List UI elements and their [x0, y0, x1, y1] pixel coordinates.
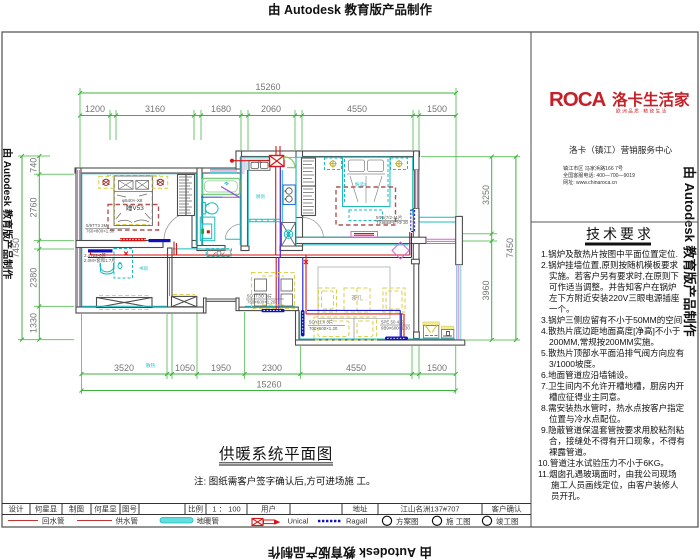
svg-text:合，接缝处不得有开口现象，不得有: 合，接缝处不得有开口现象，不得有 — [549, 436, 685, 446]
svg-text:1330: 1330 — [29, 313, 39, 333]
svg-text:3250: 3250 — [481, 185, 491, 205]
svg-text:3520: 3520 — [114, 363, 134, 373]
svg-text:5.散热片顶部水平面沿排气阀方向应有: 5.散热片顶部水平面沿排气阀方向应有 — [541, 348, 684, 358]
svg-text:3.锅炉三侧应留有不小于50MM的空间: 3.锅炉三侧应留有不小于50MM的空间 — [541, 315, 682, 325]
svg-text:散热: 散热 — [146, 362, 156, 369]
svg-text:5/9TT3 3M: 5/9TT3 3M — [86, 223, 108, 228]
svg-text:网址: www.chinaroca.cn: 网址: www.chinaroca.cn — [563, 179, 617, 186]
svg-text:洛卡生活家: 洛卡生活家 — [612, 90, 690, 109]
svg-text:何星显: 何星显 — [94, 504, 117, 514]
svg-text:睡V53: 睡V53 — [126, 204, 144, 212]
svg-text:3160: 3160 — [145, 104, 165, 114]
svg-text:15260: 15260 — [256, 380, 281, 390]
svg-text:地暖管: 地暖管 — [197, 516, 220, 526]
svg-text:一个。: 一个。 — [549, 304, 575, 314]
svg-text:方案图: 方案图 — [396, 516, 419, 526]
svg-text:1200: 1200 — [85, 104, 105, 114]
svg-text:2060: 2060 — [261, 104, 281, 114]
svg-text:用户: 用户 — [261, 504, 276, 514]
svg-text:由 Autodesk 教育版产品制作: 由 Autodesk 教育版产品制作 — [268, 2, 432, 17]
svg-text:Ragall: Ragall — [346, 517, 368, 526]
svg-text:7450: 7450 — [11, 238, 21, 258]
svg-text:4550: 4550 — [346, 363, 366, 373]
svg-text:15260: 15260 — [255, 82, 280, 92]
svg-text:可作适当调整。并告知客户在锅炉: 可作适当调整。并告知客户在锅炉 — [549, 282, 677, 292]
svg-text:2760: 2760 — [29, 197, 39, 217]
svg-text:由 Autodesk 教育版产品制作: 由 Autodesk 教育版产品制作 — [1, 148, 14, 279]
svg-text:1680: 1680 — [211, 104, 231, 114]
svg-text:9.隐蔽管道保温套管按要求用胶粘剂粘: 9.隐蔽管道保温套管按要求用胶粘剂粘 — [541, 425, 685, 435]
svg-text:5ΟΤΤ3Ο 3片: 5ΟΤΤ3Ο 3片 — [247, 293, 272, 300]
svg-text:镇江市区 冯家浜路166 7号: 镇江市区 冯家浜路166 7号 — [563, 165, 623, 172]
svg-text:员开孔。: 员开孔。 — [551, 491, 585, 501]
svg-text:8.需安装热水管时，热水点按客户指定: 8.需安装热水管时，热水点按客户指定 — [541, 403, 685, 413]
svg-text:2300: 2300 — [262, 363, 282, 373]
svg-text:4.散热片底边距地面高度[净高]不小于: 4.散热片底边距地面高度[净高]不小于 — [541, 326, 681, 336]
svg-text:左下方附近安装220V三眼电源插座: 左下方附近安装220V三眼电源插座 — [549, 293, 680, 303]
svg-text:全国客服电话: 400—700—9019: 全国客服电话: 400—700—9019 — [563, 172, 635, 179]
svg-text:厨房: 厨房 — [256, 193, 266, 200]
svg-text:供暖系统平面图: 供暖系统平面图 — [219, 445, 333, 463]
svg-text:注: 图纸需客户签字确认后,方可进场施 工。: 注: 图纸需客户签字确认后,方可进场施 工。 — [194, 476, 376, 488]
svg-text:供水管: 供水管 — [116, 516, 139, 526]
svg-text:江山名洲137#707: 江山名洲137#707 — [400, 504, 459, 514]
svg-text:5ΡΕ 50 4片: 5ΡΕ 50 4片 — [381, 319, 403, 326]
svg-text:比例: 比例 — [188, 504, 203, 514]
svg-text:760×600×1.20: 760×600×1.20 — [247, 300, 276, 305]
svg-text:Unical: Unical — [288, 517, 309, 526]
svg-text:裸露管道。: 裸露管道。 — [549, 447, 592, 457]
svg-text:客户确认: 客户确认 — [492, 504, 522, 514]
svg-text:欧洲品质·精致生活: 欧洲品质·精致生活 — [616, 108, 668, 115]
svg-text:书房: 书房 — [139, 265, 149, 272]
svg-text:5ΟΥ(1.0 3片: 5ΟΥ(1.0 3片 — [309, 319, 333, 326]
svg-text:3/1000坡度。: 3/1000坡度。 — [549, 359, 601, 369]
svg-text:1 ： 100: 1 ： 100 — [212, 505, 240, 514]
svg-text:技术要求: 技术要求 — [586, 226, 654, 242]
svg-text:由 Autodesk 教育版产品制作: 由 Autodesk 教育版产品制作 — [682, 166, 697, 336]
svg-text:位置与冷水点配位。: 位置与冷水点配位。 — [549, 414, 626, 424]
svg-text:回水管: 回水管 — [42, 516, 65, 526]
svg-text:760×800×1.50: 760×800×1.50 — [86, 229, 115, 234]
svg-text:1050: 1050 — [175, 363, 195, 373]
svg-text:何星显: 何星显 — [35, 504, 58, 514]
svg-text:7450: 7450 — [505, 238, 515, 258]
svg-text:1950: 1950 — [211, 363, 231, 373]
svg-text:地址: 地址 — [353, 504, 368, 514]
svg-text:实施。若客户另有要求时,在原则下: 实施。若客户另有要求时,在原则下 — [549, 271, 679, 281]
svg-text:制图: 制图 — [69, 504, 84, 514]
svg-text:图号: 图号 — [122, 505, 137, 514]
svg-text:2380: 2380 — [29, 268, 39, 288]
svg-text:6.地面管道应沿墙铺设。: 6.地面管道应沿墙铺设。 — [541, 370, 633, 380]
svg-text:施 工图: 施 工图 — [446, 516, 471, 526]
svg-text:1500: 1500 — [427, 104, 447, 114]
svg-text:φ540×-Χ8: φ540×-Χ8 — [122, 198, 143, 203]
svg-text:7.卫生间内不允许开槽地槽，厨房内开: 7.卫生间内不允许开槽地槽，厨房内开 — [541, 381, 685, 391]
svg-text:ROCA: ROCA — [549, 88, 607, 111]
svg-text:施工人员画线定位，由客户装修人: 施工人员画线定位，由客户装修人 — [551, 480, 679, 490]
svg-text:9Β9×600×1.30: 9Β9×600×1.30 — [381, 326, 410, 331]
svg-text:4550: 4550 — [347, 104, 367, 114]
svg-text:10.管道注水试验压力不小于6KG。: 10.管道注水试验压力不小于6KG。 — [538, 458, 669, 468]
svg-text:200MM,常规按200MM实施。: 200MM,常规按200MM实施。 — [549, 337, 659, 347]
svg-text:3960: 3960 — [481, 280, 491, 300]
svg-text:粉蓝5: 粉蓝5 — [355, 181, 367, 188]
svg-text:1500: 1500 — [427, 363, 447, 373]
svg-text:槽应征得业主同意。: 槽应征得业主同意。 — [549, 392, 626, 402]
svg-text:洛卡（镇江）营销服务中心: 洛卡（镇江）营销服务中心 — [569, 144, 673, 155]
svg-text:由 Autodesk 教育版产品制作: 由 Autodesk 教育版产品制作 — [268, 545, 432, 560]
svg-text:1.锅炉及散热片按图中平面位置定位.: 1.锅炉及散热片按图中平面位置定位. — [541, 249, 678, 259]
svg-text:11.烟囱孔遇玻璃面时，由我公司现场: 11.烟囱孔遇玻璃面时，由我公司现场 — [538, 469, 677, 479]
svg-text:700×600×1.20: 700×600×1.20 — [309, 326, 338, 331]
svg-text:740: 740 — [29, 158, 39, 173]
svg-text:2.锅炉挂墙位置,原则按随机模板要求: 2.锅炉挂墙位置,原则按随机模板要求 — [541, 260, 678, 270]
svg-text:竣工图: 竣工图 — [496, 516, 519, 526]
svg-text:设计: 设计 — [9, 504, 24, 514]
